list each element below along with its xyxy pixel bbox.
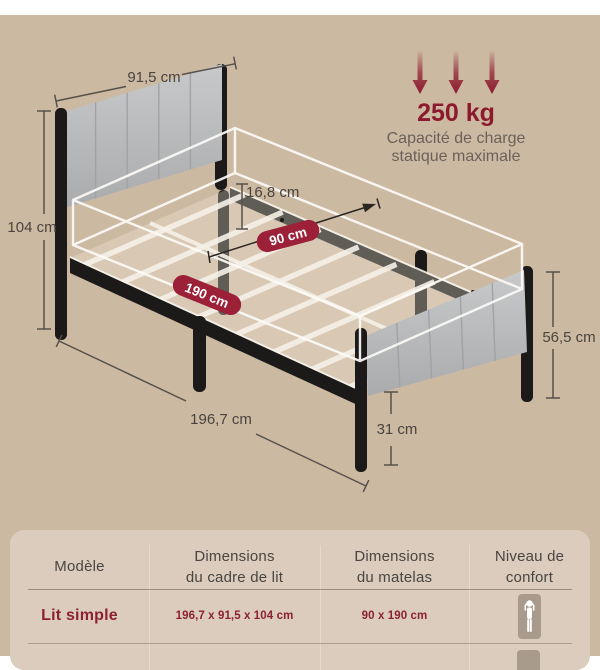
label-frame-length: 196,7 cm [190, 411, 252, 428]
column-header-comfort-level: Niveau deconfort [469, 545, 590, 589]
label-side-height: 16,8 cm [246, 184, 299, 201]
cell-model: Lit simple [10, 589, 149, 643]
capacity-value: 250 kg [417, 99, 495, 127]
label-headboard-width: 91,5 cm [127, 69, 180, 86]
column-header-mattress-dimensions: Dimensionsdu matelas [320, 545, 469, 589]
column-header-model: Modèle [10, 545, 149, 589]
cell-mattress-dimensions: 90 x 190 cm [320, 589, 469, 643]
label-total-height: 104 cm [7, 219, 56, 236]
person-lying-icon [518, 594, 541, 639]
cell-frame-dimensions: 196,7 x 91,5 x 104 cm [149, 589, 320, 643]
label-under-bed-clearance: 31 cm [377, 421, 418, 438]
top-white-strip [0, 0, 600, 15]
person-lying-icon-partial [517, 650, 540, 670]
table-row-divider [28, 643, 572, 644]
headboard-front-leg [55, 108, 67, 340]
label-footboard-height: 56,5 cm [542, 329, 595, 346]
capacity-caption-line2: statique maximale [392, 148, 521, 165]
column-header-frame-dimensions: Dimensionsdu cadre de lit [149, 545, 320, 589]
capacity-caption-line1: Capacité de charge [387, 130, 526, 147]
cell-comfort-level [469, 589, 590, 643]
spec-table: Modèle Dimensionsdu cadre de lit Dimensi… [10, 530, 590, 670]
near-middle-leg [193, 316, 206, 392]
